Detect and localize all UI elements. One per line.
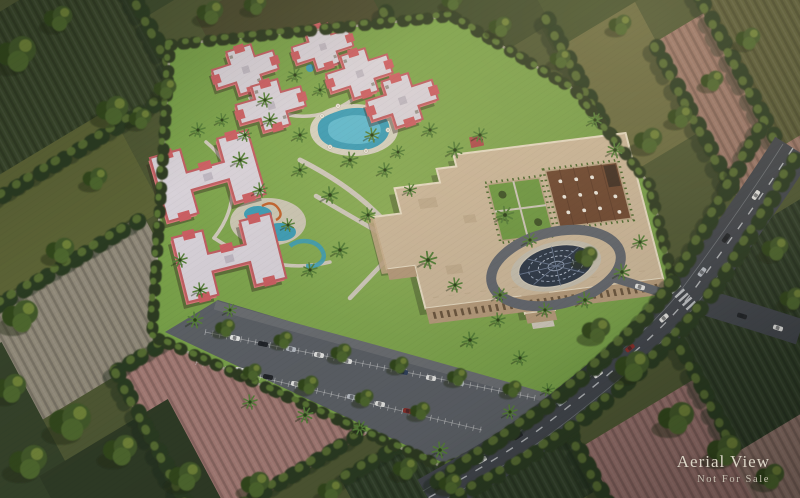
watermark-subtitle: Not For Sale — [677, 474, 770, 485]
watermark: Aerial View Not For Sale — [677, 453, 770, 485]
aerial-render-canvas — [0, 0, 800, 498]
watermark-title: Aerial View — [677, 453, 770, 472]
dusk-overlay — [0, 0, 800, 498]
aerial-render: Aerial View Not For Sale — [0, 0, 800, 498]
